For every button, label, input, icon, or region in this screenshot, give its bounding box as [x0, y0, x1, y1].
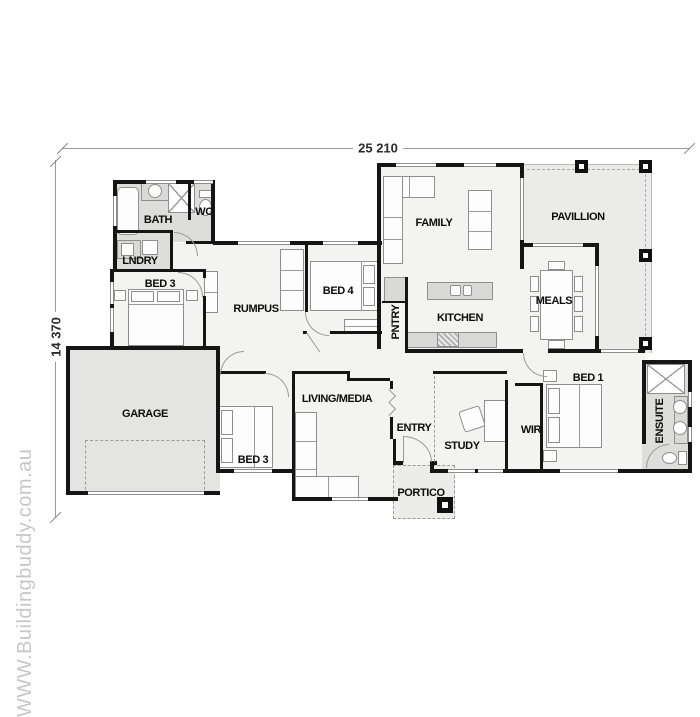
basin-icon	[148, 184, 162, 198]
wall	[433, 371, 507, 374]
pillow-icon	[221, 410, 233, 435]
dimension-width-label: 25 210	[353, 141, 403, 156]
chair-icon	[548, 340, 565, 349]
window	[110, 308, 114, 332]
chair-icon	[574, 296, 583, 312]
room-label-bed3-lower: BED 3	[238, 454, 268, 466]
room-label-pntry: PNTRY	[390, 305, 402, 340]
desk-icon	[484, 400, 506, 442]
bathtub-icon	[117, 187, 139, 235]
sofa-icon	[280, 249, 304, 311]
portico-post	[437, 497, 453, 513]
room-label-garage: GARAGE	[122, 408, 168, 420]
pillow-icon	[157, 291, 180, 302]
room-label-living-media: LIVING/MEDIA	[302, 393, 372, 405]
wall	[377, 163, 381, 349]
washer-icon	[142, 240, 158, 255]
wall	[66, 346, 70, 495]
pavillion-dash-top	[527, 169, 650, 171]
room-label-bed1: BED 1	[573, 372, 603, 384]
window	[238, 241, 290, 245]
pillow-icon	[221, 438, 233, 463]
dimension-depth-label: 14 370	[49, 312, 64, 362]
window	[560, 469, 618, 473]
room-label-bed4: BED 4	[323, 285, 353, 297]
chair-icon	[574, 276, 583, 292]
wall	[66, 346, 220, 350]
sofa-icon	[383, 176, 403, 264]
pavillion-post	[639, 249, 652, 262]
wall	[642, 360, 692, 364]
window	[478, 469, 503, 473]
pillow-icon	[363, 287, 375, 306]
room-label-entry: ENTRY	[397, 422, 432, 434]
wall	[305, 241, 308, 312]
pavillion-post	[639, 160, 652, 173]
room-label-bed3-upper: BED 3	[145, 278, 175, 290]
sink-icon	[463, 285, 472, 296]
wall	[292, 371, 350, 374]
window	[113, 196, 117, 226]
window	[520, 178, 524, 240]
wall	[170, 230, 173, 272]
linen-cupboard	[384, 277, 406, 302]
window	[533, 243, 583, 247]
room-label-portico: PORTICO	[397, 487, 444, 499]
sofa-icon	[468, 190, 492, 250]
window	[234, 469, 272, 473]
cased-opening	[434, 376, 436, 462]
window	[146, 180, 176, 184]
window	[396, 163, 436, 167]
room-label-wir: WIR	[521, 424, 541, 436]
floor-plan: BATH WC LNDRY BED 3 RUMPUS BED 4 PNTRY K…	[0, 0, 700, 717]
sink-icon	[450, 285, 461, 296]
wall	[642, 360, 646, 444]
wall	[515, 383, 542, 386]
chair-icon	[574, 316, 583, 332]
bedside-table-icon	[543, 450, 557, 462]
garage-setdown	[85, 440, 205, 495]
shower-icon	[647, 364, 685, 394]
wall	[112, 269, 205, 272]
chair-icon	[530, 276, 539, 292]
window	[194, 180, 213, 184]
wall	[115, 230, 173, 233]
room-label-family: FAMILY	[416, 217, 453, 229]
room-label-pavillion: PAVILLION	[551, 211, 604, 223]
room-label-lndry: LNDRY	[122, 255, 157, 267]
wall	[405, 349, 523, 353]
wall	[390, 381, 393, 389]
garage-door-opening	[88, 491, 204, 495]
watermark: WWW.Buildingbuddy.com.au	[14, 436, 37, 717]
window	[332, 497, 368, 501]
wall	[382, 301, 407, 303]
room-label-kitchen: KITCHEN	[437, 312, 483, 324]
room-label-bath: BATH	[144, 214, 172, 226]
wall	[393, 461, 403, 465]
room-label-rumpus: RUMPUS	[233, 303, 278, 315]
pillow-icon	[363, 265, 375, 284]
window	[464, 163, 496, 167]
window	[688, 392, 692, 407]
stove-icon	[437, 332, 459, 347]
room-label-study: STUDY	[444, 440, 479, 452]
wall	[292, 371, 295, 501]
wall	[688, 360, 692, 473]
pillow-icon	[131, 291, 154, 302]
toilet-tank-icon	[678, 451, 687, 465]
wall	[216, 346, 220, 473]
wall	[505, 380, 508, 469]
wall	[113, 180, 117, 272]
wall	[405, 277, 408, 349]
pavillion-post	[575, 160, 588, 173]
wall	[203, 296, 206, 349]
bedside-table-icon	[114, 290, 126, 301]
chair-icon	[530, 316, 539, 332]
wall	[390, 417, 393, 439]
basin-icon	[673, 421, 687, 435]
window	[323, 241, 358, 245]
pavillion-floor-top	[523, 165, 652, 247]
wall	[203, 269, 206, 278]
room-label-wc: WC	[195, 206, 213, 218]
room-label-meals: MEALS	[536, 295, 573, 307]
robe-icon	[204, 271, 218, 313]
pillow-icon	[548, 417, 560, 443]
window	[601, 349, 638, 353]
basin-icon	[673, 400, 687, 414]
chair-icon	[548, 261, 565, 270]
room-label-ensuite: ENSUITE	[654, 399, 666, 444]
sofa-icon	[295, 476, 359, 498]
window	[595, 266, 599, 336]
wall	[188, 180, 191, 220]
pillow-icon	[548, 388, 560, 414]
window	[110, 282, 114, 304]
window	[688, 427, 692, 442]
wall	[347, 378, 390, 381]
wall	[330, 331, 382, 334]
window	[448, 469, 475, 473]
